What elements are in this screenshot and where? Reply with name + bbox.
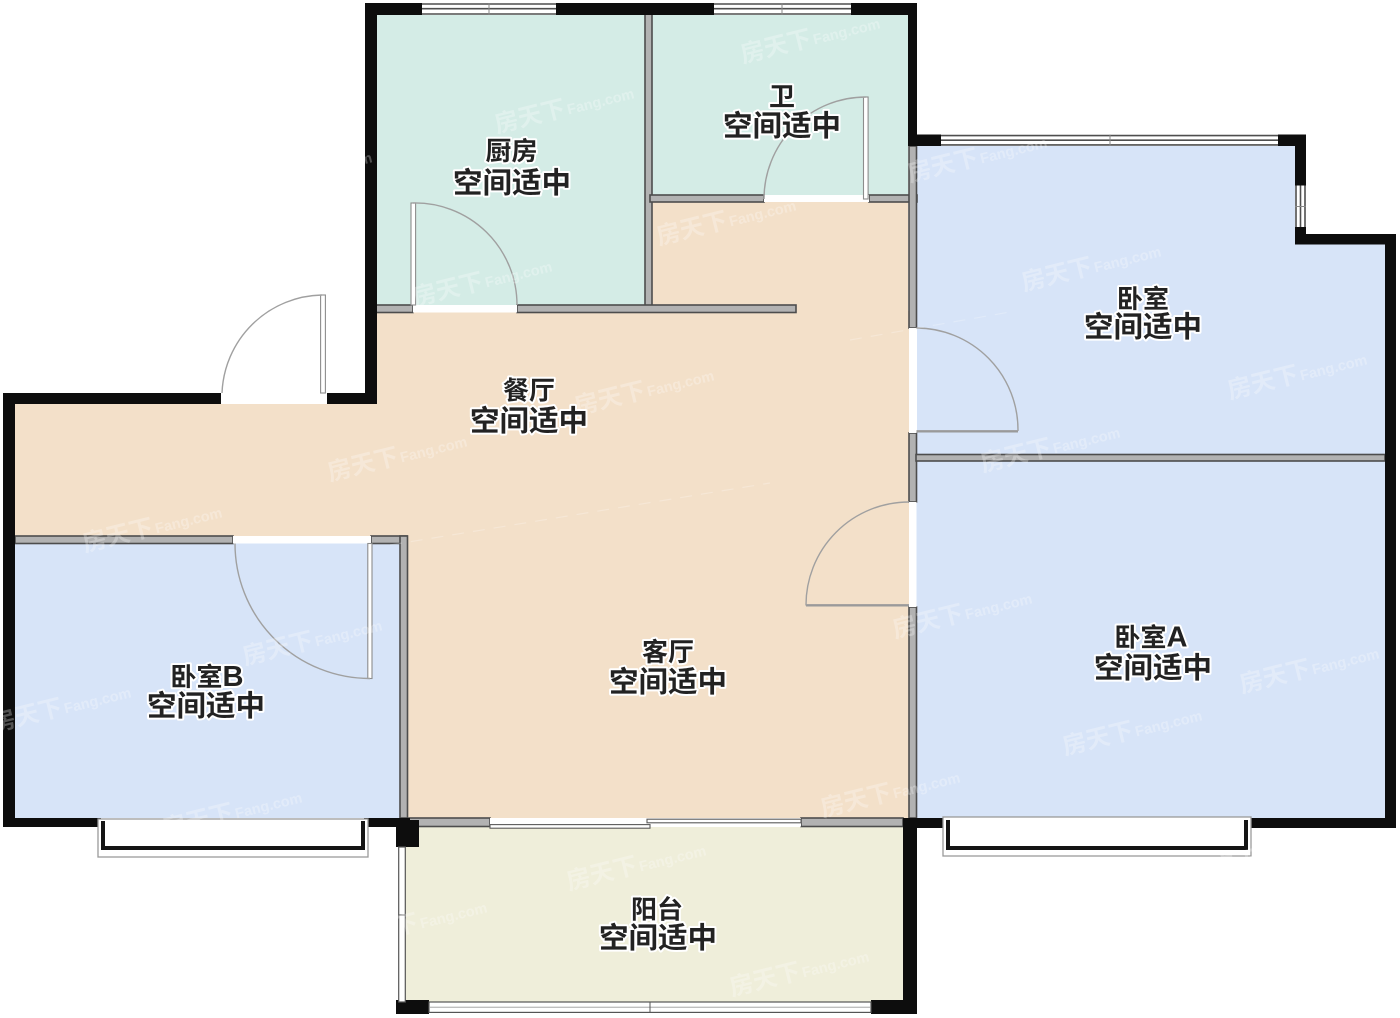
svg-text:A: A	[1166, 622, 1187, 654]
svg-text:B: B	[222, 661, 243, 693]
